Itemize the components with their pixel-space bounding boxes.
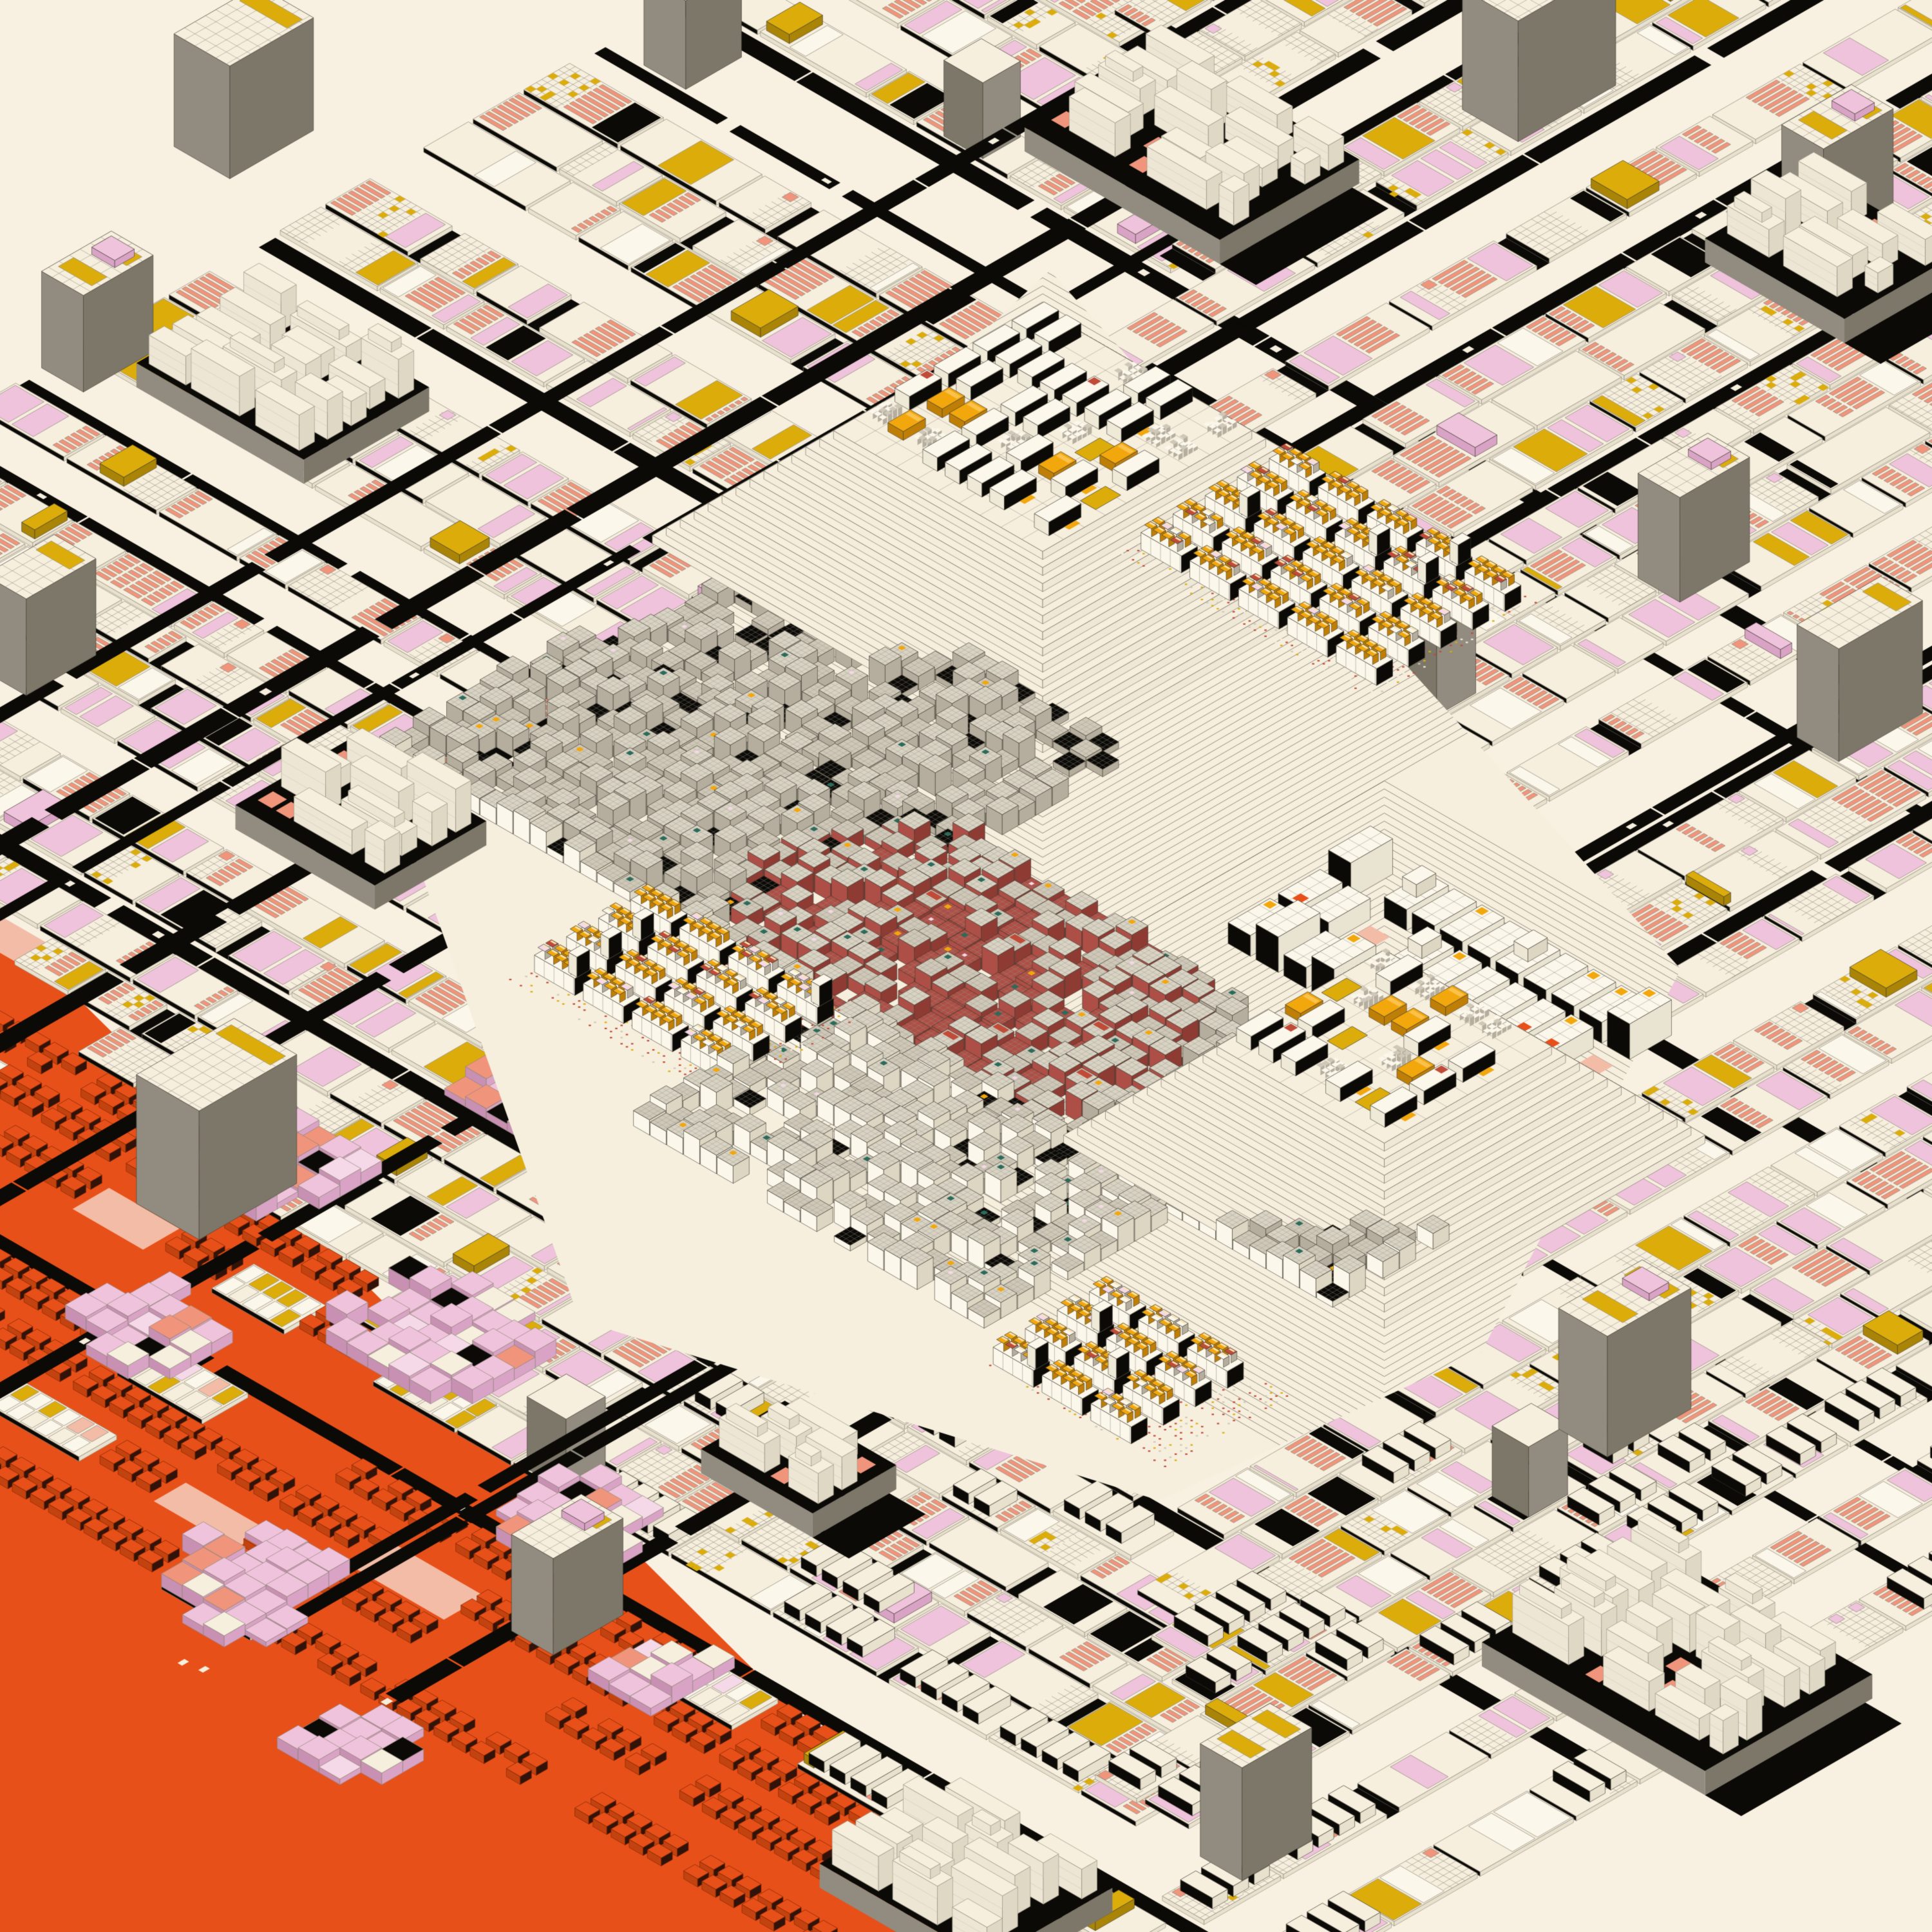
isometric-city-canvas — [0, 0, 1932, 1932]
artwork-frame — [0, 0, 1932, 1932]
